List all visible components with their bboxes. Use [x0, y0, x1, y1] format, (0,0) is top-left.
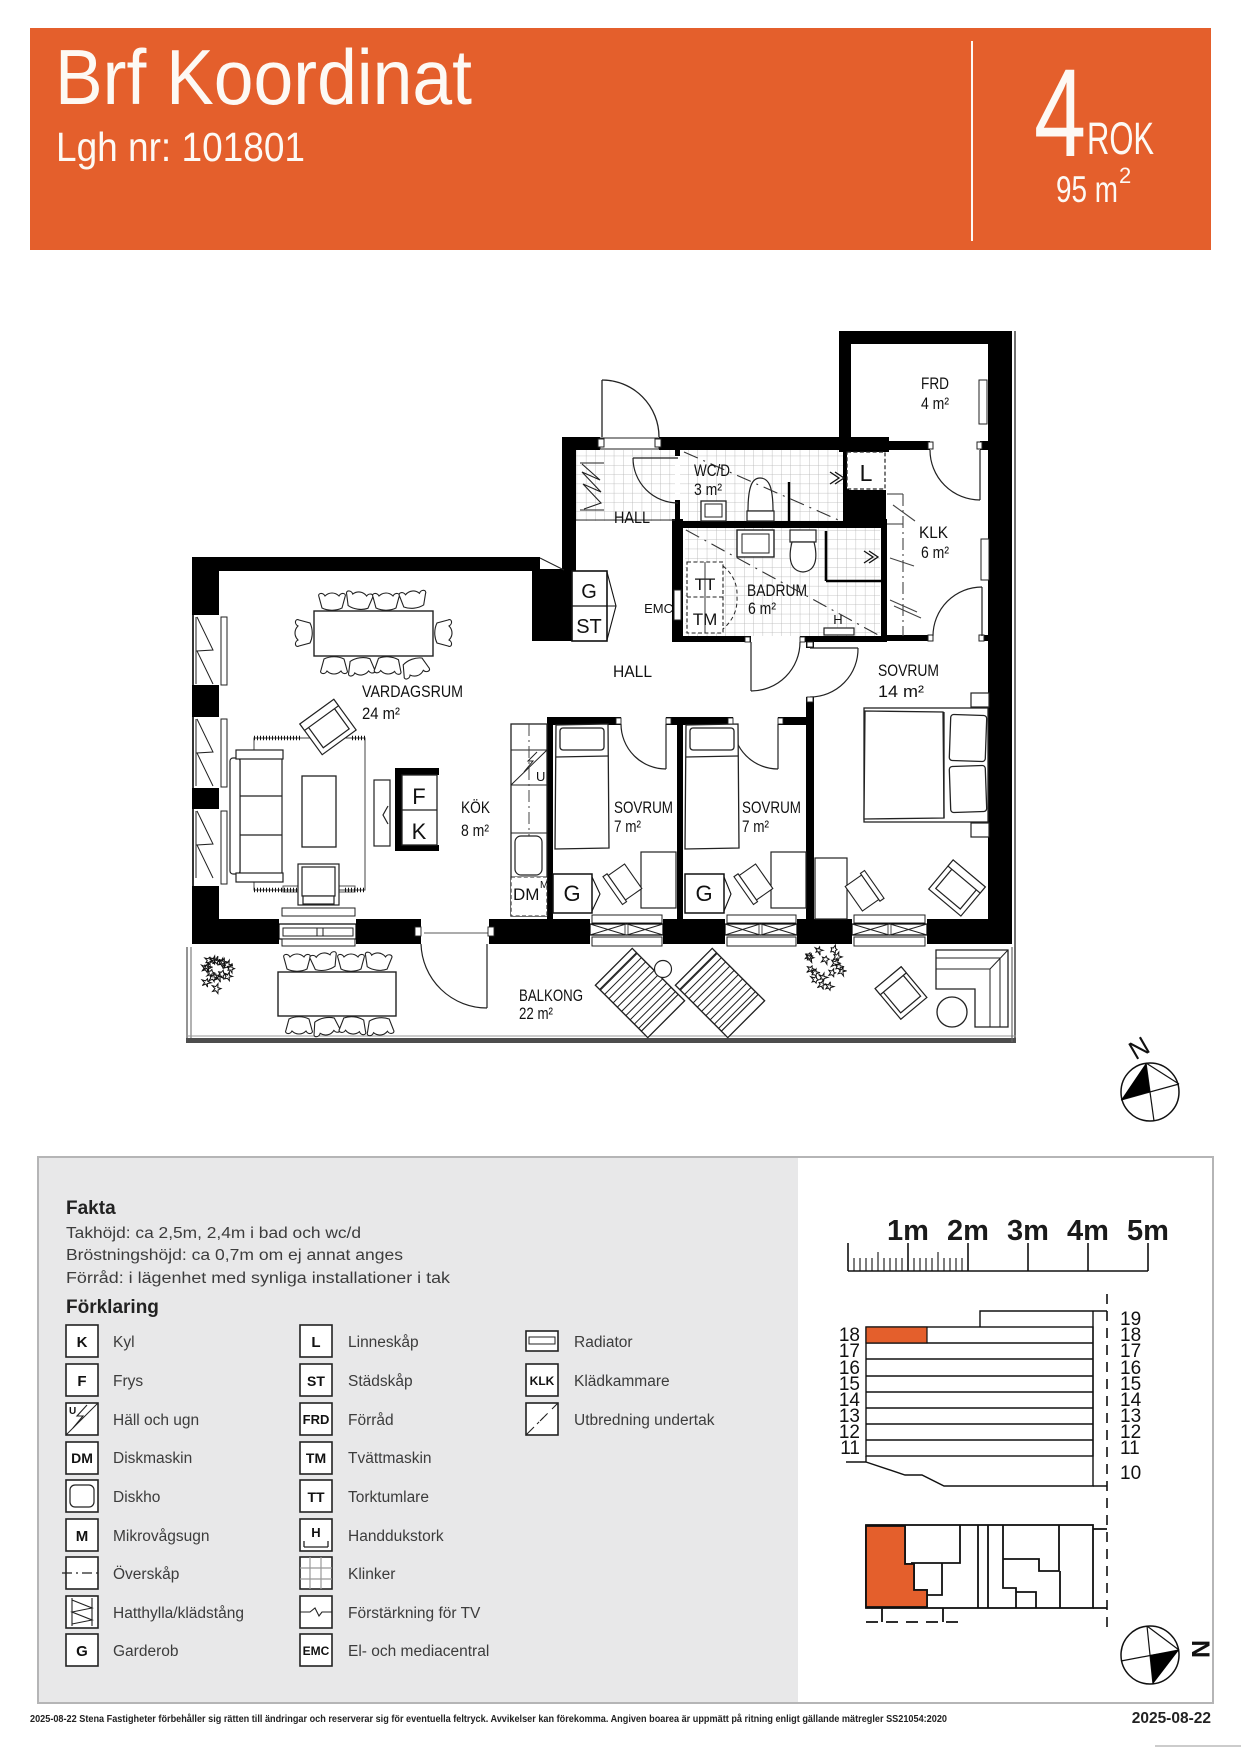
svg-text:Takhöjd: ca 2,5m, 2,4m i bad o: Takhöjd: ca 2,5m, 2,4m i bad och wc/d [66, 1225, 361, 1242]
svg-text:FRD: FRD [303, 1412, 330, 1427]
svg-text:K: K [77, 1334, 88, 1351]
svg-text:Förstärkning för TV: Förstärkning för TV [348, 1605, 481, 1622]
svg-text:2m: 2m [947, 1215, 989, 1247]
svg-text:DM: DM [71, 1450, 93, 1466]
svg-text:Förklaring: Förklaring [66, 1297, 159, 1318]
svg-text:G: G [581, 581, 597, 603]
svg-text:FRD: FRD [921, 374, 949, 393]
svg-text:TT: TT [695, 575, 716, 594]
svg-text:Mikrovågsugn: Mikrovågsugn [113, 1528, 210, 1545]
svg-text:G: G [76, 1643, 88, 1660]
svg-text:Klinker: Klinker [348, 1566, 395, 1583]
svg-text:6 m²: 6 m² [748, 599, 776, 618]
svg-text:14 m²: 14 m² [878, 682, 924, 701]
svg-text:BALKONG: BALKONG [519, 986, 583, 1005]
svg-text:G: G [695, 881, 712, 906]
svg-text:L: L [311, 1334, 320, 1351]
svg-text:L: L [860, 460, 873, 486]
svg-text:SOVRUM: SOVRUM [742, 798, 801, 817]
svg-text:Häll och ugn: Häll och ugn [113, 1412, 199, 1429]
svg-text:N: N [1186, 1640, 1214, 1658]
svg-text:Kyl: Kyl [113, 1334, 135, 1351]
svg-text:Diskmaskin: Diskmaskin [113, 1450, 192, 1467]
svg-text:2025-08-22: 2025-08-22 [1132, 1710, 1211, 1727]
svg-text:24 m²: 24 m² [362, 704, 400, 723]
svg-text:6 m²: 6 m² [921, 543, 949, 562]
svg-text:SOVRUM: SOVRUM [878, 661, 939, 680]
svg-text:ROK: ROK [1087, 113, 1154, 164]
svg-text:Förråd: Förråd [348, 1412, 394, 1429]
svg-text:M: M [540, 880, 548, 891]
svg-text:11: 11 [840, 1438, 860, 1459]
svg-text:El- och mediacentral: El- och mediacentral [348, 1643, 489, 1660]
svg-text:7 m²: 7 m² [742, 817, 769, 836]
svg-text:8 m²: 8 m² [461, 821, 489, 840]
svg-text:Handdukstork: Handdukstork [348, 1528, 444, 1545]
svg-text:Klädkammare: Klädkammare [574, 1373, 670, 1390]
svg-text:U: U [69, 1406, 76, 1417]
svg-text:95 m: 95 m [1056, 169, 1118, 210]
svg-text:ST: ST [307, 1373, 325, 1389]
svg-text:4m: 4m [1067, 1215, 1109, 1247]
svg-text:G: G [563, 881, 580, 906]
svg-text:22 m²: 22 m² [519, 1004, 553, 1023]
svg-text:U: U [536, 769, 545, 784]
svg-text:Utbredning undertak: Utbredning undertak [574, 1412, 715, 1429]
svg-text:DM: DM [513, 885, 539, 904]
svg-text:EMC: EMC [644, 601, 673, 616]
svg-text:10: 10 [1120, 1463, 1141, 1484]
svg-text:VARDAGSRUM: VARDAGSRUM [362, 682, 463, 701]
svg-text:SOVRUM: SOVRUM [614, 798, 673, 817]
svg-text:BADRUM: BADRUM [747, 581, 807, 600]
svg-text:KLK: KLK [919, 523, 949, 542]
svg-text:Bröstningshöjd: ca 0,7m om ej: Bröstningshöjd: ca 0,7m om ej annat ange… [66, 1247, 403, 1264]
svg-text:EMC: EMC [303, 1644, 330, 1658]
svg-text:H: H [311, 1525, 320, 1540]
svg-text:Garderob: Garderob [113, 1643, 178, 1660]
svg-text:Brf Koordinat: Brf Koordinat [55, 33, 472, 121]
svg-text:Frys: Frys [113, 1373, 143, 1390]
svg-text:5m: 5m [1127, 1215, 1169, 1247]
svg-text:1m: 1m [887, 1215, 929, 1247]
svg-text:Fakta: Fakta [66, 1198, 116, 1219]
svg-text:M: M [76, 1528, 89, 1545]
svg-text:KLK: KLK [530, 1374, 555, 1388]
svg-text:Hatthylla/klädstång: Hatthylla/klädstång [113, 1605, 244, 1622]
svg-text:TM: TM [693, 610, 718, 629]
svg-text:Linneskåp: Linneskåp [348, 1334, 419, 1351]
svg-text:H: H [833, 612, 842, 627]
svg-text:HALL: HALL [614, 508, 650, 527]
svg-text:Förråd: i lägenhet med synliga: Förråd: i lägenhet med synliga installat… [66, 1270, 450, 1287]
svg-text:F: F [77, 1373, 86, 1390]
svg-text:Diskho: Diskho [113, 1489, 160, 1506]
svg-text:KÖK: KÖK [461, 798, 491, 817]
svg-text:Tvättmaskin: Tvättmaskin [348, 1450, 432, 1467]
svg-text:3m: 3m [1007, 1215, 1049, 1247]
svg-text:WC/D: WC/D [694, 461, 730, 480]
svg-text:7 m²: 7 m² [614, 817, 641, 836]
svg-text:Torktumlare: Torktumlare [348, 1489, 429, 1506]
svg-text:2: 2 [1119, 163, 1131, 188]
svg-text:ST: ST [576, 616, 602, 638]
svg-text:2025-08-22 Stena Fastigheter f: 2025-08-22 Stena Fastigheter förbehåller… [30, 1713, 947, 1725]
svg-text:3 m²: 3 m² [694, 480, 722, 499]
svg-text:Överskåp: Överskåp [113, 1565, 179, 1583]
svg-text:4: 4 [1034, 44, 1086, 183]
svg-text:TT: TT [307, 1489, 325, 1505]
svg-text:K: K [412, 819, 427, 844]
svg-text:F: F [412, 784, 425, 809]
svg-text:Lgh nr: 101801: Lgh nr: 101801 [56, 124, 305, 170]
svg-text:Städskåp: Städskåp [348, 1373, 413, 1390]
svg-text:11: 11 [1120, 1438, 1140, 1459]
svg-text:4 m²: 4 m² [921, 394, 949, 413]
svg-text:HALL: HALL [613, 662, 652, 681]
svg-text:Radiator: Radiator [574, 1334, 633, 1351]
svg-text:TM: TM [306, 1450, 326, 1466]
